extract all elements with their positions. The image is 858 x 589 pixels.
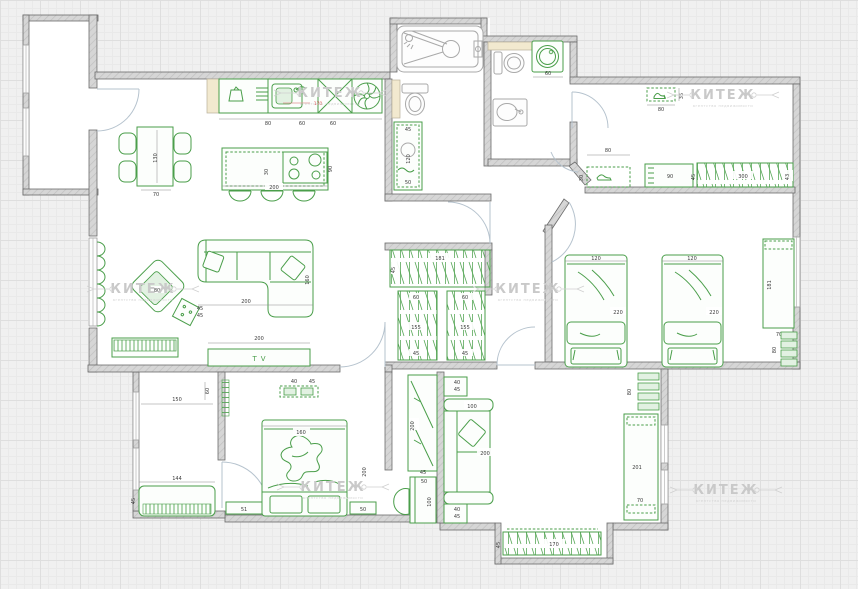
floorplan-canvas: 80 60 60 170 200 30 90 130 70 200 160 80… xyxy=(0,0,858,589)
sink-icon xyxy=(493,99,527,126)
dim-label: 120 xyxy=(406,154,412,164)
bath-cabinet: 45 120 50 xyxy=(394,122,422,190)
svg-text:агентство недвижимости: агентство недвижимости xyxy=(303,496,364,500)
svg-text:КИТЕЖ: КИТЕЖ xyxy=(297,86,362,101)
bump-wardrobe: 170 45 xyxy=(496,529,601,555)
dim-label: 60 xyxy=(462,295,468,301)
side-table-small: 40 45 xyxy=(444,504,467,523)
dim-label: 200 xyxy=(410,421,416,431)
dim-label: 60 xyxy=(413,295,419,301)
dim-label: 170 xyxy=(549,542,559,548)
dim-label: 40 xyxy=(454,380,460,386)
sofa: 100 200 xyxy=(444,399,493,504)
dim-label: 160 xyxy=(296,430,306,436)
dim-label: 200 xyxy=(480,451,490,457)
bathtub-icon xyxy=(397,26,483,72)
dim-label: 45 xyxy=(454,514,460,520)
bed-single: 120 220 xyxy=(662,255,723,367)
dim-label: 200 xyxy=(362,467,368,477)
dim-label: 35 xyxy=(679,93,685,99)
dim-label: 181 xyxy=(767,280,773,290)
dim-label: 45 xyxy=(496,542,502,548)
dim-label: 130 xyxy=(153,153,159,163)
dim-label: 60 xyxy=(205,388,211,394)
dim-label: 201 xyxy=(632,465,642,471)
dim-label: 45 xyxy=(462,351,468,357)
dim-label: 45 xyxy=(131,498,137,504)
dim-label: 50 xyxy=(360,507,366,513)
dim-label: 60 xyxy=(330,121,336,127)
nightstand: 50 xyxy=(350,502,376,514)
svg-text:агентство недвижимости: агентство недвижимости xyxy=(113,298,174,302)
dim-label: 45 xyxy=(454,387,460,393)
dim-label: 45 xyxy=(197,313,203,319)
mirror-wardrobe: 200 45 xyxy=(408,375,437,476)
watermark: КИТЕЖ агентство недвижимости xyxy=(670,483,782,503)
svg-text:КИТЕЖ: КИТЕЖ xyxy=(693,483,758,498)
dim-label: 155 xyxy=(460,325,470,331)
dim-label: 80 xyxy=(772,347,778,353)
bed-single: 120 220 xyxy=(565,255,627,367)
svg-text:КИТЕЖ: КИТЕЖ xyxy=(495,282,560,297)
dim-label: 155 xyxy=(411,325,421,331)
dim-label: 80 xyxy=(265,121,271,127)
dim-label: 80 xyxy=(605,148,611,154)
dim-label: 220 xyxy=(613,310,623,316)
dim-label: 150 xyxy=(172,397,182,403)
dim-label: 90 xyxy=(667,174,673,180)
washing-machine-icon: 60 xyxy=(532,41,563,77)
dim-label: 70 xyxy=(637,498,643,504)
side-table-small: 40 45 xyxy=(444,377,467,396)
closet-wardrobe-right: 60 155 45 xyxy=(447,291,485,360)
dim-label: 45 xyxy=(691,174,697,180)
dim-label: 144 xyxy=(172,476,182,482)
dim-label: 120 xyxy=(687,256,697,262)
dim-label: 43 xyxy=(785,174,791,180)
dim-label: 70 xyxy=(153,192,159,198)
dim-label: 45 xyxy=(309,379,315,385)
floorplan-drawing: 80 60 60 170 200 30 90 130 70 200 160 80… xyxy=(0,0,858,589)
dim-label: 45 xyxy=(197,306,203,312)
dim-label: 45 xyxy=(413,351,419,357)
dim-label: 60 xyxy=(299,121,305,127)
console-bench xyxy=(112,338,178,357)
dim-label: 100 xyxy=(427,497,433,507)
svg-text:КИТЕЖ: КИТЕЖ xyxy=(300,480,365,495)
toilet-icon xyxy=(494,52,524,74)
svg-text:агентство недвижимости: агентство недвижимости xyxy=(498,298,559,302)
hall-cabinet: 90 xyxy=(645,164,693,187)
closet-wardrobe-left: 60 155 45 xyxy=(398,291,437,360)
dim-label: 45 xyxy=(405,127,411,133)
dim-label: 80 xyxy=(627,389,633,395)
svg-text:агентство недвижимости: агентство недвижимости xyxy=(693,104,754,108)
dim-label: 60 xyxy=(545,71,551,77)
balcony-bench: 144 45 xyxy=(131,476,215,516)
svg-text:КИТЕЖ: КИТЕЖ xyxy=(110,282,175,297)
tall-cabinet: 201 70 xyxy=(624,414,658,520)
desk: 181 70 xyxy=(763,239,794,338)
dim-label: 40 xyxy=(454,507,460,513)
dim-label: 30 xyxy=(264,169,270,175)
dim-label: 40 xyxy=(291,379,297,385)
dim-label: 90 xyxy=(328,166,334,172)
dim-label: 100 xyxy=(467,404,477,410)
dim-label: 200 xyxy=(269,185,279,191)
dim-label: 300 xyxy=(738,174,748,180)
dim-label: 30 xyxy=(579,175,585,181)
dim-label: 45 xyxy=(391,267,397,273)
dim-label: 200 xyxy=(241,299,251,305)
nightstand: 51 xyxy=(226,502,262,514)
svg-text:агентство недвижимости: агентство недвижимости xyxy=(696,499,757,503)
dim-label: 220 xyxy=(709,310,719,316)
dim-label: 50 xyxy=(421,479,427,485)
dim-label: 51 xyxy=(241,507,247,513)
closet-wardrobe-top: 181 45 xyxy=(390,250,490,287)
radiator xyxy=(222,380,229,416)
dim-label: 120 xyxy=(591,256,601,262)
hall-wardrobe: 45 300 43 xyxy=(691,163,793,187)
dim-label: 181 xyxy=(435,256,445,262)
svg-text:агентство недвижимости: агентство недвижимости xyxy=(300,102,361,106)
tv-label: TV xyxy=(251,355,269,363)
dim-label: 80 xyxy=(658,107,664,113)
dim-label: 200 xyxy=(254,336,264,342)
svg-text:КИТЕЖ: КИТЕЖ xyxy=(690,88,755,103)
dim-label: 50 xyxy=(405,180,411,186)
dim-label: 45 xyxy=(420,470,426,476)
dim-label: 160 xyxy=(305,275,311,285)
